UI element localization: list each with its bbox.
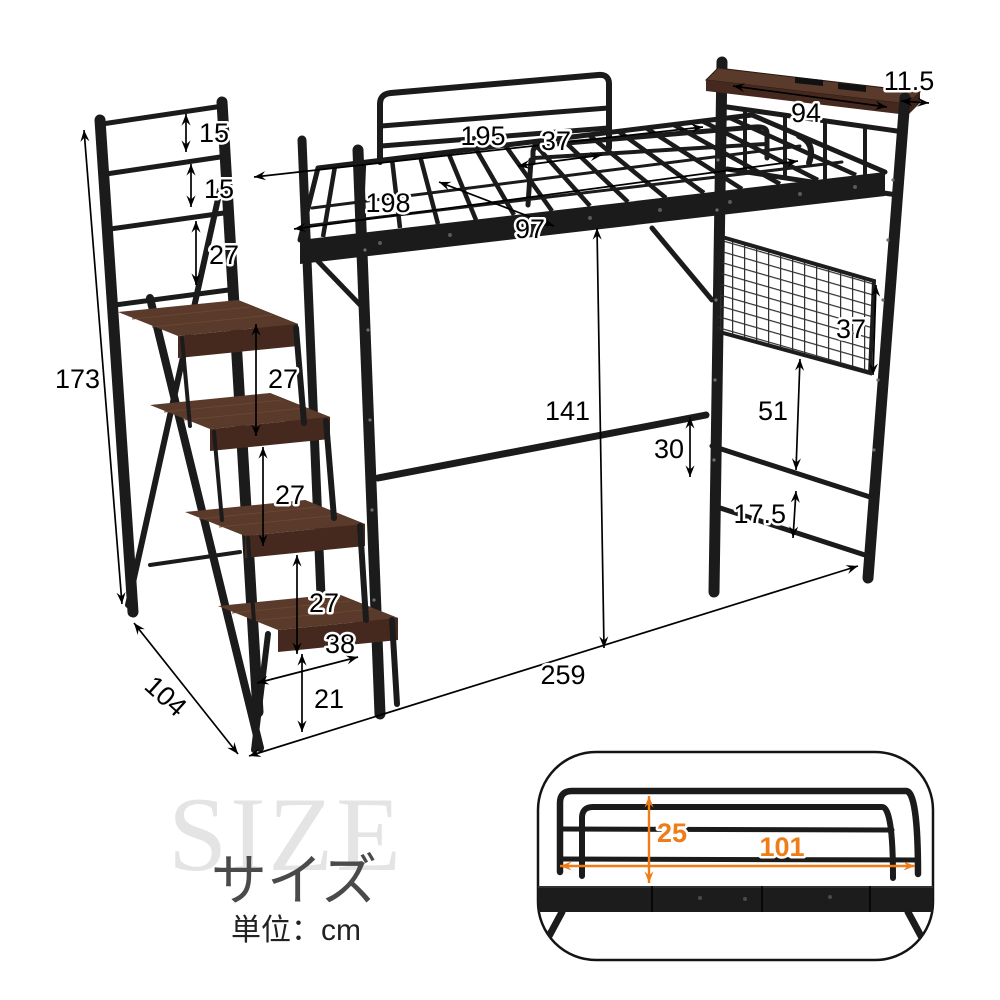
side-crossbar-upper	[712, 446, 870, 497]
svg-text:141: 141	[545, 396, 590, 426]
inset-bed-beam	[528, 886, 943, 912]
svg-text:101: 101	[759, 832, 804, 862]
svg-text:11.5: 11.5	[884, 66, 935, 96]
svg-text:198: 198	[365, 188, 410, 218]
headguard-inset: 25 101	[528, 752, 943, 960]
svg-text:38: 38	[325, 629, 355, 659]
caption-block: SIZE サイズ 単位：cm	[168, 776, 404, 947]
svg-text:37: 37	[836, 314, 866, 344]
svg-text:173: 173	[55, 364, 100, 394]
svg-text:21: 21	[314, 684, 344, 714]
stair-side-rail	[150, 552, 240, 565]
svg-text:15: 15	[204, 174, 234, 204]
svg-text:51: 51	[758, 396, 788, 426]
svg-text:30: 30	[654, 434, 684, 464]
dim-mesh-to-crossbar: 51	[758, 359, 800, 470]
svg-text:27: 27	[268, 364, 298, 394]
svg-text:37: 37	[541, 126, 571, 156]
step-4	[118, 300, 298, 358]
size-diagram-page: 15 15 27 173 27 27 27 38	[0, 0, 1000, 1000]
svg-text:17.5: 17.5	[733, 499, 786, 529]
svg-text:94: 94	[791, 98, 821, 128]
dim-stair-depth: 104	[134, 623, 238, 754]
svg-text:259: 259	[540, 660, 585, 690]
size-title-jp: サイズ	[211, 851, 377, 913]
corner-brace	[652, 228, 712, 300]
front-beam	[300, 172, 885, 264]
dim-handrail-gap-top: 15	[186, 114, 229, 152]
svg-text:15: 15	[199, 118, 229, 148]
svg-text:104: 104	[139, 670, 193, 722]
svg-text:195: 195	[460, 121, 505, 151]
svg-text:97: 97	[515, 214, 545, 244]
svg-text:27: 27	[209, 240, 239, 270]
loft-bed-size-diagram: 15 15 27 173 27 27 27 38	[0, 0, 1000, 1000]
svg-text:27: 27	[309, 588, 339, 618]
svg-text:27: 27	[275, 480, 305, 510]
mesh-panel	[716, 237, 874, 373]
svg-text:25: 25	[657, 818, 687, 848]
unit-note: 単位：cm	[231, 914, 361, 947]
